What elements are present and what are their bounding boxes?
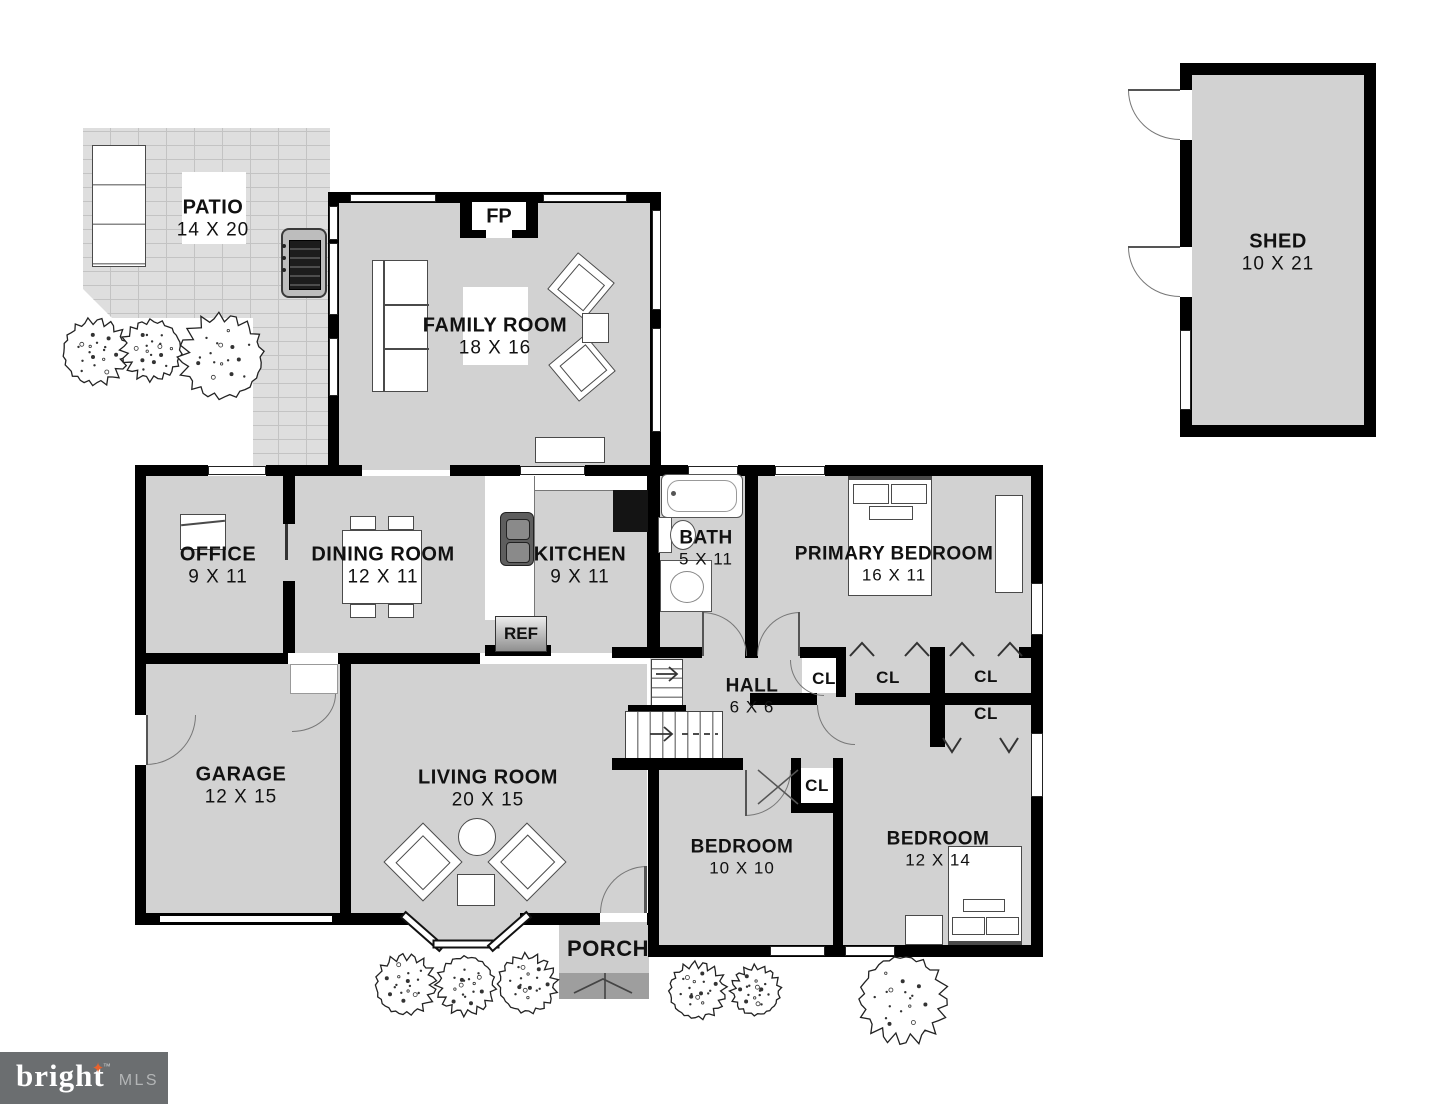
shrub-texture-dot <box>159 353 163 357</box>
room-label-kitchen: KITCHEN 9 X 11 <box>534 544 626 589</box>
porch-steps <box>559 973 649 999</box>
shrub-texture-dot <box>909 1005 911 1007</box>
shrub-texture-dot <box>480 990 484 994</box>
window <box>845 946 895 956</box>
shrub-texture-dot <box>237 358 241 362</box>
shrub-texture-dot <box>473 982 475 984</box>
window <box>520 466 585 475</box>
shrub-icon <box>669 961 728 1020</box>
shrub-texture-dot <box>134 346 138 350</box>
staircase-up <box>651 659 683 709</box>
shrub-texture-dot <box>900 1010 902 1012</box>
shrub-texture-dot <box>385 976 389 980</box>
shrub-texture-dot <box>104 346 106 348</box>
shrub-texture-dot <box>745 974 749 978</box>
shrub-texture-dot <box>103 358 105 360</box>
shrub-texture-dot <box>196 361 200 365</box>
shrub-texture-dot <box>452 1000 456 1004</box>
shrub-texture-dot <box>746 986 748 988</box>
shrub-texture-dot <box>546 982 550 986</box>
patio-door <box>329 243 338 315</box>
shrub-texture-dot <box>91 333 95 337</box>
shrub-texture-dot <box>146 350 148 352</box>
shrub-texture-dot <box>453 977 455 979</box>
shrub-texture-dot <box>93 364 95 366</box>
shrub-texture-dot <box>142 368 144 370</box>
room-label-bed1: BEDROOM 10 X 10 <box>691 836 794 877</box>
shrub-texture-dot <box>759 994 761 996</box>
shrub-texture-dot <box>151 340 153 342</box>
garage-door <box>160 916 332 922</box>
shrub-texture-dot <box>114 353 118 357</box>
shrub-texture-dot <box>199 356 201 358</box>
shrub-texture-dot <box>409 985 411 987</box>
shrub-texture-dot <box>89 345 91 347</box>
window <box>329 206 338 240</box>
shrub-texture-dot <box>406 979 410 983</box>
shrub-texture-dot <box>388 992 392 996</box>
shrub-texture-dot <box>702 1002 704 1004</box>
room-label-office: OFFICE 9 X 11 <box>180 544 256 589</box>
shrub-texture-dot <box>759 990 761 992</box>
shrub-texture-dot <box>463 969 465 971</box>
shrub-texture-dot <box>96 342 98 344</box>
shrub-icon <box>859 957 948 1044</box>
shrub-texture-dot <box>885 972 887 974</box>
shrub-texture-dot <box>748 985 750 987</box>
shrub-texture-dot <box>227 359 229 361</box>
shrub-texture-dot <box>689 995 693 999</box>
shed-door-swing <box>1128 90 1180 140</box>
room-label-primary: PRIMARY BEDROOM 16 X 11 <box>795 543 994 584</box>
shrub-texture-dot <box>161 334 163 336</box>
dresser <box>995 495 1023 593</box>
shrub-texture-dot <box>417 979 419 981</box>
shrub-texture-dot <box>463 980 465 982</box>
shrub-texture-dot <box>80 342 84 346</box>
shrub-texture-dot <box>886 991 888 993</box>
shrub-texture-dot <box>539 988 541 990</box>
shrub-texture-dot <box>536 989 538 991</box>
shrub-texture-dot <box>77 346 79 348</box>
dining-chair <box>388 516 414 530</box>
bathtub <box>661 474 743 518</box>
window <box>329 338 338 396</box>
shrub-texture-dot <box>689 1003 691 1005</box>
window <box>1031 583 1043 635</box>
patio-bench <box>92 145 146 267</box>
fireplace-label: FP <box>486 206 512 229</box>
shrub-texture-dot <box>759 987 763 991</box>
shrub-texture-dot <box>714 982 718 986</box>
shrub-texture-dot <box>904 991 906 993</box>
shrub-texture-dot <box>911 1021 915 1025</box>
shrub-texture-dot <box>519 984 521 986</box>
shrub-texture-dot <box>454 988 456 990</box>
shrub-texture-dot <box>888 1022 892 1026</box>
shrub-icon <box>435 956 497 1017</box>
shrub-texture-dot <box>514 993 516 995</box>
shrub-icon <box>177 312 264 399</box>
shrub-texture-dot <box>152 360 156 364</box>
shrub-texture-dot <box>911 995 913 997</box>
refrigerator: REF <box>495 616 547 652</box>
shrub-texture-dot <box>909 997 911 999</box>
shrub-texture-dot <box>528 986 532 990</box>
shrub-texture-dot <box>917 984 921 988</box>
shrub-texture-dot <box>680 993 682 995</box>
shrub-texture-dot <box>227 329 229 331</box>
shrub-texture-dot <box>744 1000 748 1004</box>
room-label-hall: HALL 6 X 6 <box>726 675 779 716</box>
shrub-texture-dot <box>216 342 218 344</box>
shrub-texture-dot <box>105 370 109 374</box>
shrub-icon <box>119 319 182 382</box>
shrub-texture-dot <box>747 994 749 996</box>
square-table <box>457 874 495 906</box>
shrub-texture-dot <box>520 977 522 979</box>
shrub-texture-dot <box>81 360 83 362</box>
shrub-texture-dot <box>209 352 211 354</box>
shrub-texture-dot <box>459 983 463 987</box>
sofa <box>372 260 428 392</box>
shrub-texture-dot <box>696 995 700 999</box>
dining-chair <box>350 604 376 618</box>
shrub-texture-dot <box>688 987 690 989</box>
shrub-texture-dot <box>407 972 409 974</box>
shrub-texture-dot <box>682 978 684 980</box>
shrub-texture-dot <box>527 996 529 998</box>
kitchen-counter-top <box>535 476 647 491</box>
shrub-texture-dot <box>230 345 234 349</box>
window <box>652 210 661 310</box>
shed-door-swing <box>1128 247 1180 297</box>
shrub-texture-dot <box>165 365 167 367</box>
shrub-texture-dot <box>756 1002 760 1006</box>
shrub-texture-dot <box>398 976 400 978</box>
shrub-texture-dot <box>462 993 464 995</box>
window <box>652 328 661 432</box>
window <box>208 466 266 475</box>
shrub-texture-dot <box>536 977 538 979</box>
shrub-texture-dot <box>703 981 705 983</box>
window <box>1031 733 1043 797</box>
shrub-texture-dot <box>159 343 161 345</box>
room-label-family: FAMILY ROOM 18 X 16 <box>423 315 567 360</box>
logo-tm: ™ <box>103 1062 111 1071</box>
shrub-texture-dot <box>400 992 402 994</box>
shrub-texture-dot <box>685 976 689 980</box>
shrub-texture-dot <box>468 978 470 980</box>
round-table <box>458 818 496 856</box>
shrub-texture-dot <box>699 991 703 995</box>
shrub-texture-dot <box>394 986 396 988</box>
window <box>543 194 627 202</box>
console-table <box>535 437 605 463</box>
shrub-texture-dot <box>889 1005 891 1007</box>
shrub-texture-dot <box>460 978 464 982</box>
shrub-texture-dot <box>81 370 83 372</box>
room-label-shed: SHED 10 X 21 <box>1242 231 1315 276</box>
shrub-texture-dot <box>103 349 105 351</box>
shrub-texture-dot <box>874 996 876 998</box>
shrub-texture-dot <box>220 363 222 365</box>
shrub-texture-dot <box>243 375 245 377</box>
window <box>350 194 436 202</box>
brightmls-logo: bright✦™ MLS <box>0 1052 168 1104</box>
closet-label: CL <box>974 667 998 687</box>
shrub-texture-dot <box>170 347 172 349</box>
shrub-texture-dot <box>523 988 527 992</box>
shrub-texture-dot <box>158 345 162 349</box>
shrub-texture-dot <box>755 985 759 989</box>
shrub-texture-dot <box>517 966 519 968</box>
shrub-texture-dot <box>509 980 511 982</box>
shrub-texture-dot <box>420 970 422 972</box>
closet-label: CL <box>805 776 829 796</box>
shrub-texture-dot <box>527 973 529 975</box>
shrub-texture-dot <box>477 975 481 979</box>
shrub-texture-dot <box>923 1003 927 1007</box>
window <box>1180 330 1191 410</box>
shrub-texture-dot <box>709 990 711 992</box>
shrub-texture-dot <box>91 355 95 359</box>
shrub-texture-dot <box>464 996 466 998</box>
shrub-texture-dot <box>140 358 144 362</box>
shrub-texture-dot <box>738 987 742 991</box>
shrub-icon <box>375 954 436 1015</box>
shrub-texture-dot <box>690 993 692 995</box>
shrub-texture-dot <box>88 351 90 353</box>
shrub-texture-dot <box>205 337 207 339</box>
nightstand <box>905 915 943 945</box>
front-door <box>644 866 647 913</box>
dining-chair <box>388 604 414 618</box>
office-door <box>285 524 288 560</box>
side-table <box>582 313 609 343</box>
shrub-texture-dot <box>707 992 709 994</box>
room-label-living: LIVING ROOM 20 X 15 <box>418 767 558 812</box>
shrub-icon <box>729 964 781 1016</box>
shrub-texture-dot <box>213 361 215 363</box>
shrub-texture-dot <box>401 999 405 1003</box>
shrub-texture-dot <box>760 1003 762 1005</box>
shrub-texture-dot <box>230 372 234 376</box>
room-label-bed2: BEDROOM 12 X 14 <box>887 828 990 869</box>
closet-label: CL <box>876 668 900 688</box>
shrub-texture-dot <box>211 375 215 379</box>
room-label-bath: BATH 5 X 11 <box>679 527 733 568</box>
staircase-down <box>625 711 723 759</box>
shrub-texture-dot <box>693 980 695 982</box>
window <box>775 466 825 475</box>
shrub-texture-dot <box>413 993 417 997</box>
grill <box>281 228 327 298</box>
shrub-icon <box>63 318 129 386</box>
shrub-texture-dot <box>764 983 766 985</box>
room-label-garage: GARAGE 12 X 15 <box>196 764 287 809</box>
shrub-texture-dot <box>150 354 152 356</box>
bay-floor <box>405 913 527 949</box>
shrub-texture-dot <box>146 334 148 336</box>
kitchen-sink <box>500 512 534 566</box>
room-label-dining: DINING ROOM 12 X 11 <box>311 544 454 589</box>
door-landing <box>290 664 338 694</box>
shrub-texture-dot <box>472 991 474 993</box>
shrub-texture-dot <box>397 963 401 967</box>
shrub-texture-dot <box>469 1001 473 1005</box>
dining-chair <box>350 516 376 530</box>
stove <box>613 490 648 532</box>
room-label-patio: PATIO 14 X 20 <box>177 197 250 242</box>
shrub-texture-dot <box>901 979 905 983</box>
shrub-icon <box>497 953 558 1014</box>
shrub-texture-dot <box>517 985 521 989</box>
shrub-texture-dot <box>754 997 756 999</box>
shrub-texture-dot <box>477 972 479 974</box>
floor-plan: FP <box>0 0 1444 1112</box>
shrub-texture-dot <box>885 1017 887 1019</box>
shrub-texture-dot <box>521 965 525 969</box>
shrub-texture-dot <box>889 988 893 992</box>
shrub-texture-dot <box>107 336 111 340</box>
shrub-texture-dot <box>141 333 145 337</box>
logo-mls-text: MLS <box>119 1072 159 1090</box>
shrub-texture-dot <box>767 993 769 995</box>
window <box>770 946 825 956</box>
shrub-texture-dot <box>146 345 148 347</box>
shrub-texture-dot <box>755 980 757 982</box>
closet-label: CL <box>812 669 836 689</box>
shrub-texture-dot <box>248 344 250 346</box>
shrub-texture-dot <box>537 967 541 971</box>
room-label-porch: PORCH <box>567 936 649 962</box>
shrub-texture-dot <box>395 984 397 986</box>
shrub-texture-dot <box>219 343 223 347</box>
closet-label: CL <box>974 704 998 724</box>
shrub-texture-dot <box>418 992 420 994</box>
shrub-texture-dot <box>407 990 409 992</box>
shrub-texture-dot <box>700 972 704 976</box>
